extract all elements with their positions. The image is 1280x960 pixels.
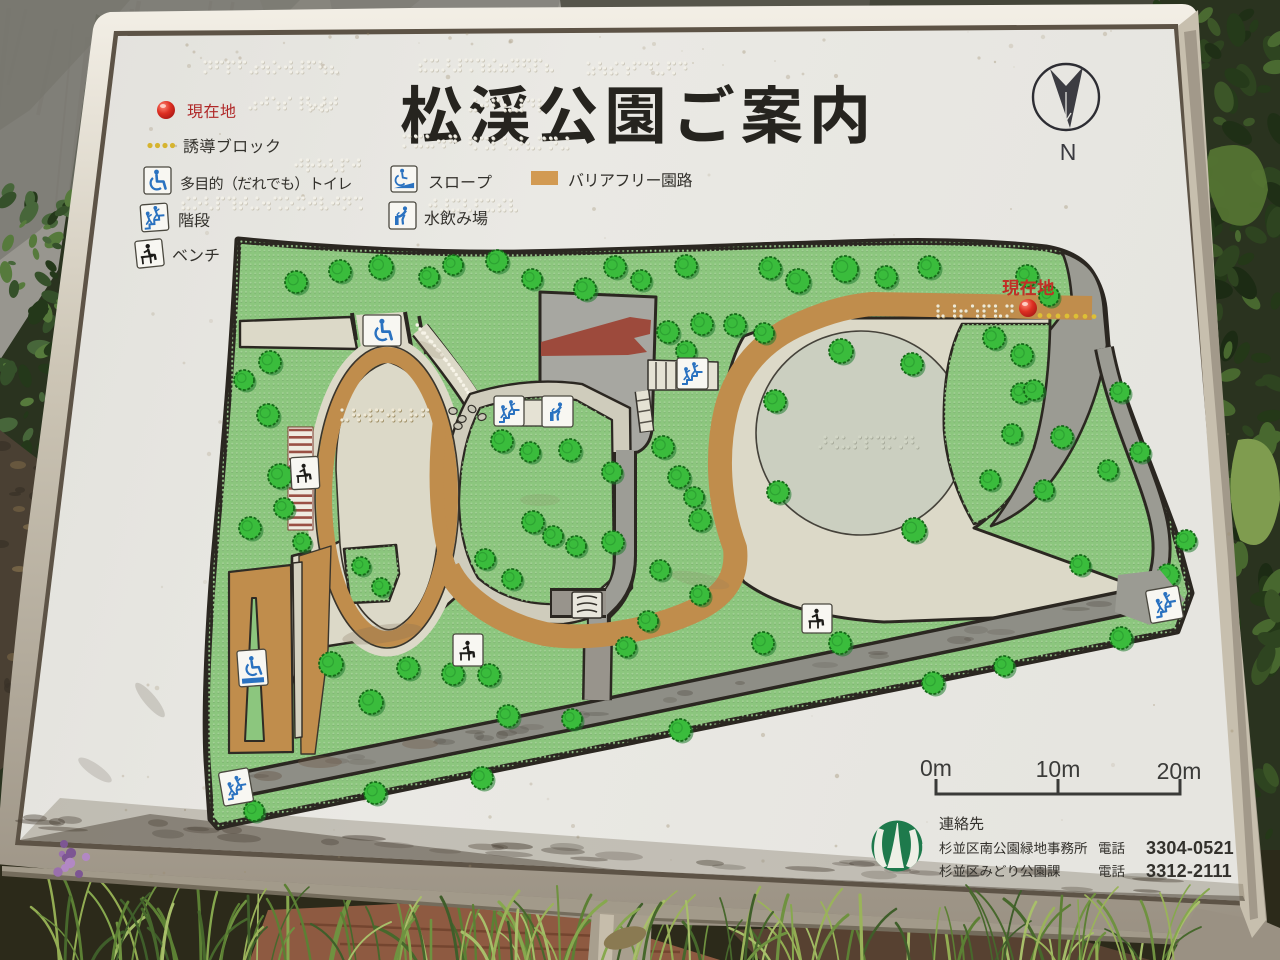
svg-text:10m: 10m xyxy=(1036,756,1081,782)
svg-text:N: N xyxy=(1060,139,1077,165)
svg-text:0m: 0m xyxy=(920,755,952,781)
svg-text:3304-0521: 3304-0521 xyxy=(1146,838,1234,858)
svg-text:3312-2111: 3312-2111 xyxy=(1146,861,1232,881)
svg-text:20m: 20m xyxy=(1157,758,1202,784)
